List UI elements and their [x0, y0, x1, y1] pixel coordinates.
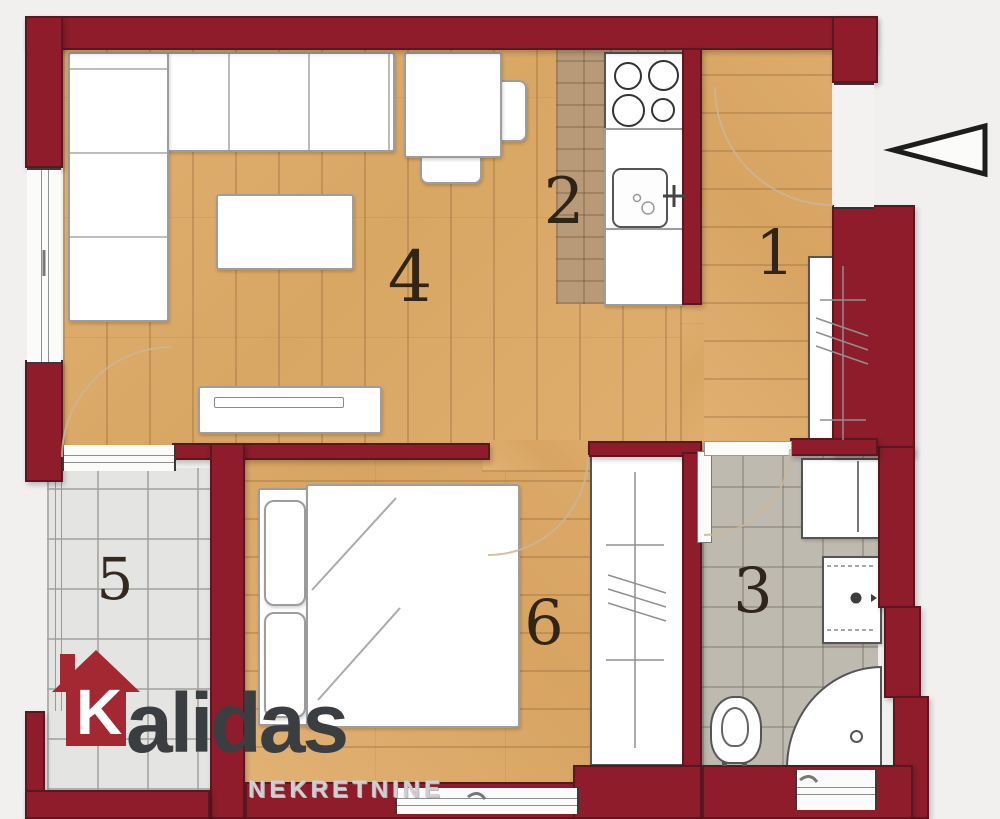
wall-right-bath-mid — [884, 606, 921, 698]
kitchen-cabinet-icon — [604, 228, 684, 306]
sofa-corner-icon — [68, 52, 169, 322]
wall-bottom-mid — [573, 765, 702, 819]
burner-icon — [648, 60, 679, 91]
wall-right-mid — [832, 205, 915, 456]
wall-bathroom-top — [790, 438, 878, 456]
bathroom-window — [795, 770, 877, 810]
wall-left-lower — [25, 360, 63, 482]
burner-icon — [612, 94, 645, 127]
room-label-bedroom: 6 — [513, 592, 575, 654]
logo-initial: K — [76, 675, 122, 749]
bathroom-vanity-icon — [822, 556, 882, 644]
bedroom-wardrobe-icon — [590, 454, 684, 766]
kitchen-sink-icon — [612, 168, 668, 228]
wall-kitchen-divider — [682, 48, 702, 305]
passage-floor — [680, 304, 704, 444]
living-room-window — [27, 168, 61, 364]
washing-machine-icon — [801, 458, 881, 539]
coffee-table-icon — [216, 194, 354, 270]
pillow-icon — [264, 500, 306, 606]
room-label-bathroom: 3 — [722, 560, 784, 622]
shower-drain-icon — [850, 730, 863, 743]
wall-top — [25, 16, 875, 50]
entrance-door-opening — [834, 83, 874, 209]
toilet-bowl-icon — [721, 707, 749, 747]
burner-icon — [651, 98, 675, 122]
terrace-door — [62, 445, 176, 471]
tv-stand-icon — [198, 386, 382, 434]
tv-icon — [214, 397, 344, 408]
room-label-entry-hall: 1 — [740, 222, 810, 284]
bathroom-door-leaf — [697, 451, 712, 543]
wall-left-upper — [25, 16, 63, 168]
burner-icon — [614, 62, 642, 90]
agency-logo: K alidas NEKRETNINE — [50, 645, 450, 815]
logo-wordmark: alidas — [126, 673, 346, 773]
wall-right-bath-upper — [878, 446, 915, 608]
floor-plan: 1 2 3 4 5 6 K alidas NEKRETNINE — [0, 0, 1000, 819]
room-label-kitchen: 2 — [534, 170, 594, 234]
bedroom-door-floor — [482, 440, 594, 472]
entrance-arrow-icon — [893, 126, 985, 174]
stove-icon — [604, 52, 684, 132]
bathroom-door-opening — [704, 441, 792, 456]
dining-table-icon — [404, 52, 502, 158]
logo-subtitle: NEKRETNINE — [248, 776, 444, 804]
room-label-terrace: 5 — [85, 550, 145, 608]
wall-right-top — [832, 16, 878, 83]
toilet-icon — [710, 696, 762, 764]
room-label-living-room: 4 — [375, 242, 445, 312]
